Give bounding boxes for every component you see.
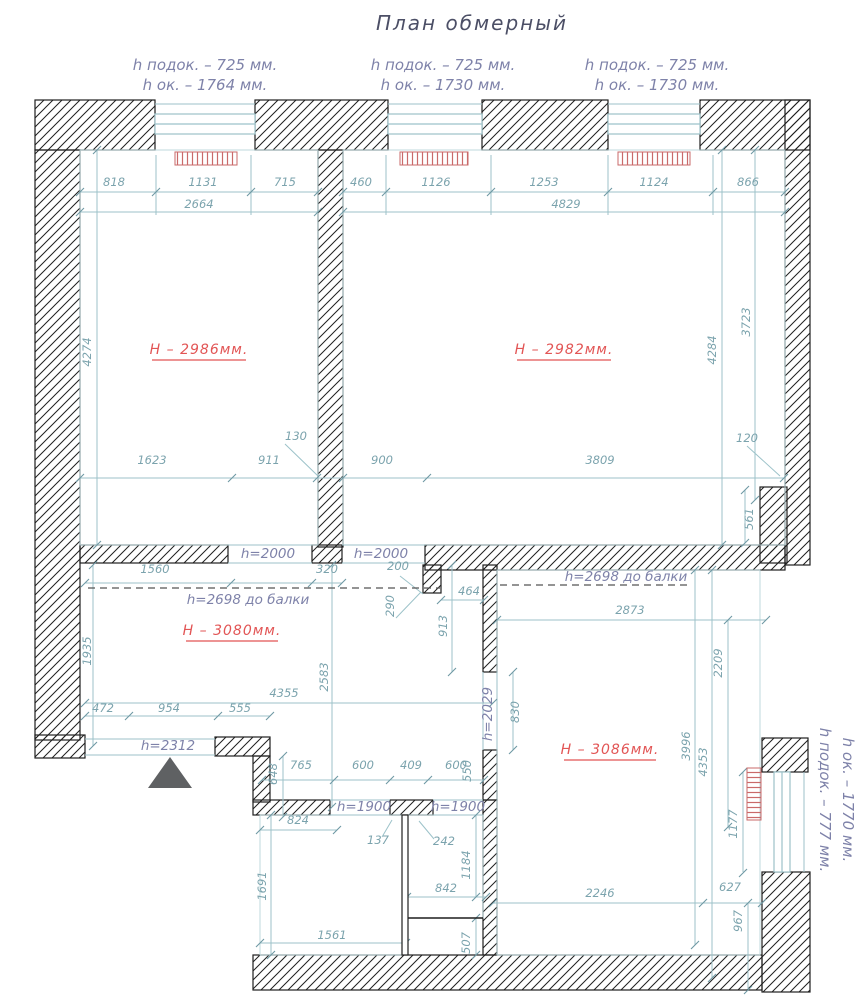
wall-segment — [482, 100, 608, 150]
opening-height-label: h=2029 — [480, 687, 496, 741]
plan-title: План обмерный — [376, 11, 568, 35]
dimension-label: 627 — [719, 880, 742, 894]
wall-segment — [785, 100, 810, 565]
dimension-label: 911 — [258, 453, 280, 467]
dimension-label: 648 — [266, 763, 280, 785]
dimension-label: 1184 — [459, 850, 473, 879]
dimension-label: 4829 — [551, 197, 580, 211]
dimension-label: 555 — [229, 701, 251, 715]
wall-segment — [35, 735, 85, 758]
wall-segment — [255, 100, 388, 150]
wall-segment — [390, 800, 433, 815]
dimension-label: 1124 — [639, 175, 668, 189]
wall-segment — [762, 872, 810, 992]
dimension-label: 765 — [290, 758, 312, 772]
radiator-icon — [175, 152, 237, 165]
floor-plan-drawing: План обмерный h подок. – 725 мм. h ок. –… — [0, 0, 865, 1000]
wall-segment — [318, 150, 343, 547]
wall-segment — [425, 545, 785, 570]
dimension-label: 4274 — [80, 337, 94, 366]
dimension-label: 830 — [508, 701, 522, 723]
wall-segment — [80, 545, 228, 563]
dimension-label: 120 — [736, 431, 758, 445]
dimension-label: 842 — [435, 881, 457, 895]
window-note-height: h ок. – 1764 мм. — [143, 76, 268, 94]
dimension-label: 460 — [350, 175, 372, 189]
dimension-label: 2209 — [711, 648, 725, 677]
opening-height-label: h=2312 — [141, 738, 195, 754]
dimension-label: 137 — [367, 833, 390, 847]
wall-segment — [762, 738, 808, 772]
wall-segment — [35, 150, 80, 740]
dimension-label: 1126 — [421, 175, 450, 189]
opening-height-label: h=2000 — [241, 546, 295, 562]
dimension-label: 900 — [371, 453, 393, 467]
dimension-label: 409 — [400, 758, 422, 772]
room-outline — [497, 570, 760, 955]
walls — [35, 100, 810, 992]
opening-height-label: h=1900 — [337, 799, 391, 815]
room-height-label: Н – 2982мм. — [515, 342, 614, 358]
dimension-label: 1253 — [529, 175, 558, 189]
wall-segment — [35, 100, 155, 150]
wall-segment — [483, 750, 497, 800]
dimension-label: 1561 — [317, 928, 346, 942]
window-note-sill: h подок. – 725 мм. — [133, 56, 277, 74]
wall-segment — [483, 800, 497, 955]
wall-segment — [423, 565, 441, 593]
dimension-label: 130 — [285, 429, 307, 443]
dimension-label: 242 — [433, 834, 455, 848]
dimension-label: 824 — [287, 813, 309, 827]
dimension-label: 2664 — [184, 197, 213, 211]
window-note-height: h ок. – 1770 мм. — [839, 738, 857, 863]
window-note-sill: h подок. – 725 мм. — [585, 56, 729, 74]
dimension-label: 2873 — [615, 603, 644, 617]
dimension-label: 2246 — [585, 886, 614, 900]
room-height-label: Н – 2986мм. — [150, 342, 249, 358]
wall-segment — [483, 565, 497, 672]
dimension-label: 715 — [274, 175, 296, 189]
dimension-label: 2583 — [317, 662, 331, 691]
dimension-label: 464 — [458, 584, 480, 598]
dimension-label: 200 — [387, 559, 409, 573]
opening-height-label: h=1900 — [431, 799, 485, 815]
dimension-label: 954 — [158, 701, 180, 715]
dimension-label: 4353 — [696, 747, 710, 776]
radiator-icon — [618, 152, 690, 165]
dimension-label: 472 — [92, 701, 114, 715]
dimension-label: 4355 — [269, 686, 298, 700]
dimension-label: 1623 — [137, 453, 166, 467]
dimension-label: 1691 — [255, 871, 269, 900]
dimension-label: 290 — [383, 595, 397, 617]
wall-segment — [215, 737, 270, 756]
dimension-label: 1177 — [726, 809, 740, 839]
dimension-label: 550 — [460, 760, 474, 782]
beam-height-note: h=2698 до балки — [187, 592, 310, 608]
room-height-label: Н – 3086мм. — [561, 742, 660, 758]
radiator-icon — [747, 768, 761, 820]
window-note-height: h ок. – 1730 мм. — [381, 76, 506, 94]
partition-wall — [402, 815, 408, 955]
entrance-arrow-icon — [148, 757, 192, 788]
dimension-label: 3723 — [739, 307, 753, 336]
dimension-label: 1935 — [80, 636, 94, 665]
wall-segment — [253, 955, 762, 990]
room-height-label: Н – 3080мм. — [183, 623, 282, 639]
window-note-height: h ок. – 1730 мм. — [595, 76, 720, 94]
beam-height-note: h=2698 до балки — [565, 569, 688, 585]
window-note-sill: h подок. – 777 мм. — [816, 728, 834, 872]
dimension-label: 3809 — [585, 453, 614, 467]
dimension-label: 600 — [352, 758, 374, 772]
dimension-label: 913 — [436, 615, 450, 637]
dimension-label: 1560 — [140, 562, 169, 576]
wall-segment — [312, 545, 342, 563]
window-note-sill: h подок. – 725 мм. — [371, 56, 515, 74]
dimension-label: 4284 — [705, 335, 719, 364]
dimension-label: 561 — [742, 508, 756, 530]
dimension-label: 967 — [731, 909, 745, 932]
dimension-label: 507 — [459, 931, 473, 954]
dimension-label: 320 — [316, 562, 338, 576]
floor-plan-page: План обмерный h подок. – 725 мм. h ок. –… — [0, 0, 865, 1000]
radiators — [175, 152, 761, 820]
beam-dashed-line — [88, 585, 688, 588]
dimension-label: 1131 — [188, 175, 217, 189]
radiator-icon — [400, 152, 468, 165]
dimension-label: 3996 — [679, 731, 693, 760]
dimension-label: 866 — [737, 175, 759, 189]
dimension-label: 818 — [103, 175, 125, 189]
